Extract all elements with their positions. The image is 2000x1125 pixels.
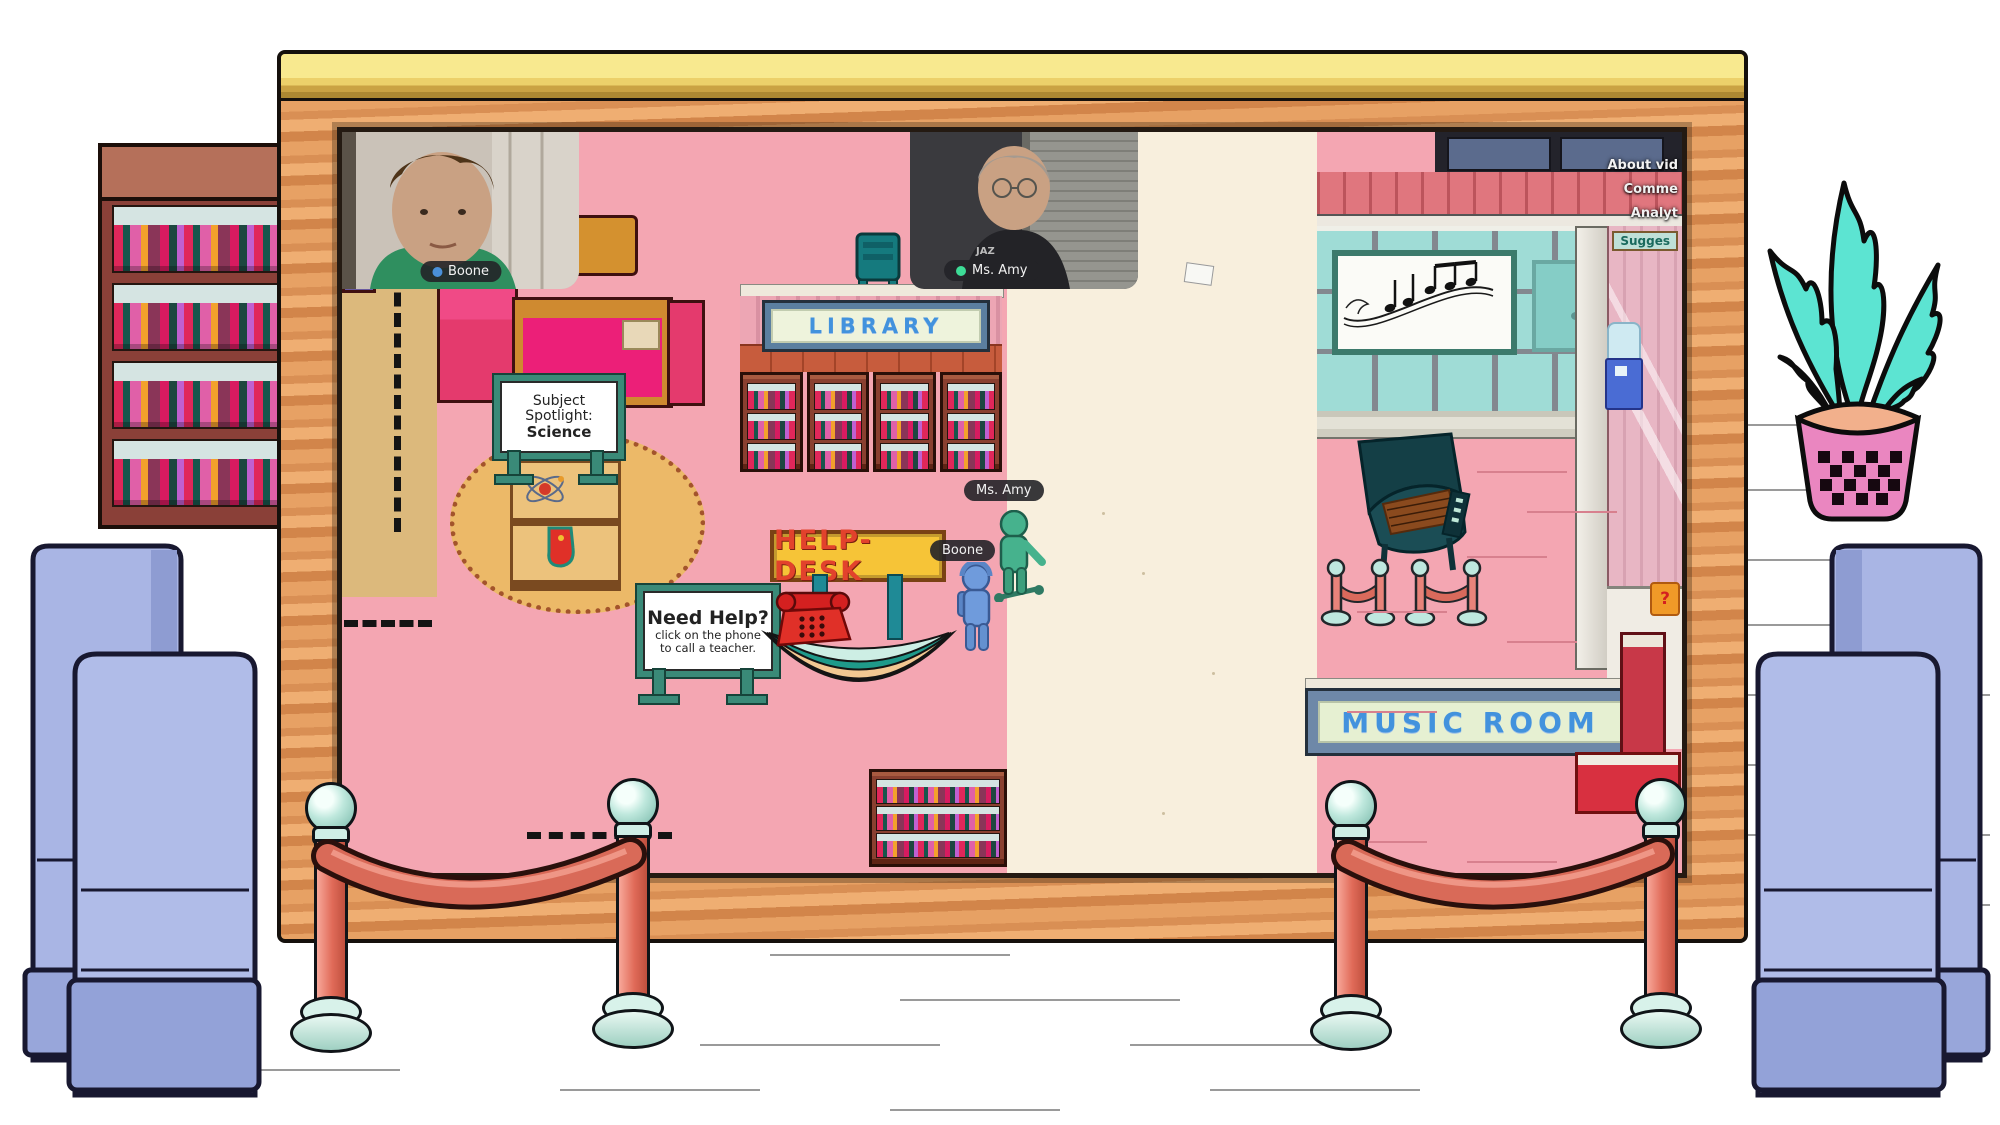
booth-seats-right	[1748, 540, 1998, 1100]
water-cooler	[1605, 322, 1639, 410]
bookshelf-row	[112, 361, 282, 429]
stanchion-post	[1308, 780, 1388, 1070]
avatar-amy-nametag: Ms. Amy	[964, 480, 1044, 501]
avatar-boone-nametag: Boone	[930, 540, 995, 561]
menu-item-community[interactable]: Comme	[1607, 182, 1678, 197]
need-help-line1: click on the phone	[655, 629, 761, 642]
scene: LIBRARY	[0, 0, 2000, 1125]
video-amy-nametag: Ms. Amy	[944, 260, 1040, 281]
video-tile-amy[interactable]: JAZ Ms. Amy	[910, 132, 1138, 289]
spotlight-line1: Subject	[533, 394, 585, 409]
walkway-dashes	[344, 620, 432, 627]
need-help-line2: to call a teacher.	[660, 642, 756, 655]
atom-icon	[521, 465, 569, 513]
couch-right	[667, 300, 705, 406]
video-tile-boone[interactable]: Boone	[342, 132, 579, 289]
frame-top-bar	[281, 54, 1744, 101]
library-bookcases	[740, 372, 1002, 472]
bookcase	[740, 372, 803, 472]
video-boone-label: Boone	[448, 264, 489, 279]
amy-status-dot	[956, 266, 966, 276]
need-help-foot	[638, 694, 680, 705]
stanchion-post	[590, 778, 670, 1068]
menu-item-suggest[interactable]: Sugges	[1612, 231, 1678, 251]
avatar-boone[interactable]	[950, 562, 1008, 654]
help-desk-label: HELP-DESK	[774, 525, 942, 587]
walkway-dashes	[394, 272, 401, 532]
app-menu: About vid Comme Analyt Sugges	[1607, 158, 1678, 260]
amy-shirt-text: JAZ	[975, 246, 995, 257]
menu-item-about-video[interactable]: About vid	[1607, 158, 1678, 173]
spotlight-sign: Subject Spotlight: Science	[494, 375, 624, 459]
music-notes-poster	[1332, 250, 1517, 355]
boone-status-dot	[432, 267, 442, 277]
red-sock-item	[541, 526, 589, 572]
booth-seats-left	[15, 540, 265, 1100]
bookcase	[807, 372, 870, 472]
video-amy-label: Ms. Amy	[972, 263, 1028, 278]
help-desk-sign: HELP-DESK	[770, 530, 946, 582]
spotlight-line2: Spotlight:	[525, 409, 593, 424]
menu-item-analytics[interactable]: Analyt	[1607, 206, 1678, 221]
music-notes	[1338, 256, 1499, 337]
bookshelf-row	[112, 205, 282, 273]
stanchion-post	[288, 782, 368, 1072]
bed-pillow	[622, 320, 660, 350]
video-boone-nametag: Boone	[420, 261, 501, 282]
bookcase	[873, 372, 936, 472]
decor-bookshelf	[98, 143, 296, 529]
spotlight-line3: Science	[527, 424, 592, 441]
spotlight-foot	[578, 474, 618, 485]
bookshelf-row	[112, 439, 282, 507]
library-sign: LIBRARY	[762, 300, 990, 352]
picture-frame: LIBRARY	[277, 50, 1748, 943]
floor-speckles	[1102, 512, 1105, 515]
potted-plant	[1760, 155, 1958, 535]
bookcase-lower	[869, 769, 1007, 867]
library-sign-label: LIBRARY	[809, 314, 944, 338]
avatar-amy-label: Ms. Amy	[976, 483, 1032, 498]
spotlight-foot	[494, 474, 534, 485]
red-phone[interactable]	[774, 585, 856, 657]
need-help-title: Need Help?	[647, 608, 769, 629]
avatar-boone-label: Boone	[942, 543, 983, 558]
bookshelf-row	[112, 283, 282, 351]
paper-scrap	[1184, 262, 1215, 286]
game-viewport[interactable]: LIBRARY	[337, 127, 1687, 878]
bookshelf-top-cap	[102, 147, 292, 201]
stanchion-post	[1618, 778, 1698, 1068]
bookcase	[940, 372, 1003, 472]
